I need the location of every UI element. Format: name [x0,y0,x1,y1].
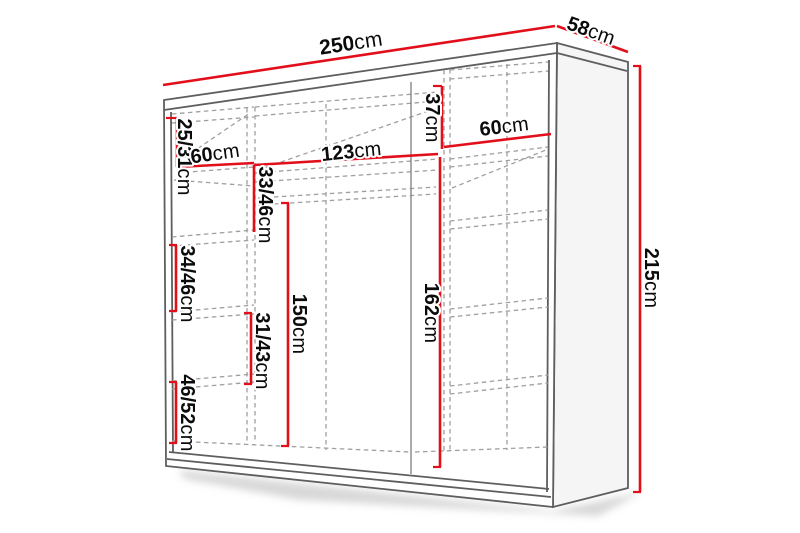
label-total-width: 250cm [318,27,384,59]
label-middle-top-compartment-value: 37 [421,93,443,115]
label-right-inner-height: 162cm [420,283,442,344]
label-middle-top-compartment-unit: cm [421,115,443,142]
label-middle-top-compartment: 37cm [421,93,443,143]
label-right-inner-height-value: 162 [420,283,442,316]
wardrobe-dimension-diagram: 250cm 58cm 215cm 25/31cm 60cm 33/46cm 12… [0,0,800,533]
label-right-section-width-value: 60 [478,116,503,141]
label-left-top-compartment-unit: cm [173,168,195,195]
label-hanging-height: 150cm [288,294,310,355]
label-total-width-value: 250 [318,32,356,60]
label-left-section-width-value: 60 [189,144,214,169]
label-right-inner-height-unit: cm [420,316,442,343]
label-hanging-height-value: 150 [288,294,310,327]
label-middle-width-value: 123 [320,141,355,166]
label-left-compartment-3-value: 34/46 [176,245,198,295]
label-middle-width-unit: cm [353,138,382,163]
label-left-compartment-5-value: 46/52 [176,374,198,424]
label-left-compartment-3-unit: cm [176,295,198,322]
label-total-depth: 58cm [564,13,618,50]
label-left-compartment-5-unit: cm [176,424,198,451]
front-face [164,43,557,507]
wardrobe-body [164,43,628,507]
label-total-height-unit: cm [640,281,662,308]
label-left-compartment-4: 31/43cm [251,312,273,389]
label-left-section-width-unit: cm [211,140,241,166]
label-total-width-unit: cm [353,27,385,54]
label-left-compartment-2: 33/46cm [254,166,276,243]
label-left-compartment-2-unit: cm [254,216,276,243]
label-total-height-value: 215 [640,248,662,281]
label-hanging-height-unit: cm [288,327,310,354]
label-left-compartment-5: 46/52cm [176,374,198,451]
label-total-height: 215cm [640,248,662,309]
label-left-compartment-3: 34/46cm [176,245,198,322]
label-left-compartment-4-unit: cm [251,362,273,389]
label-right-section-width-unit: cm [500,113,530,138]
diagram-canvas: 250cm 58cm 215cm 25/31cm 60cm 33/46cm 12… [0,0,800,533]
label-left-compartment-4-value: 31/43 [251,312,273,362]
side-face [553,43,628,507]
label-left-compartment-2-value: 33/46 [254,166,276,216]
